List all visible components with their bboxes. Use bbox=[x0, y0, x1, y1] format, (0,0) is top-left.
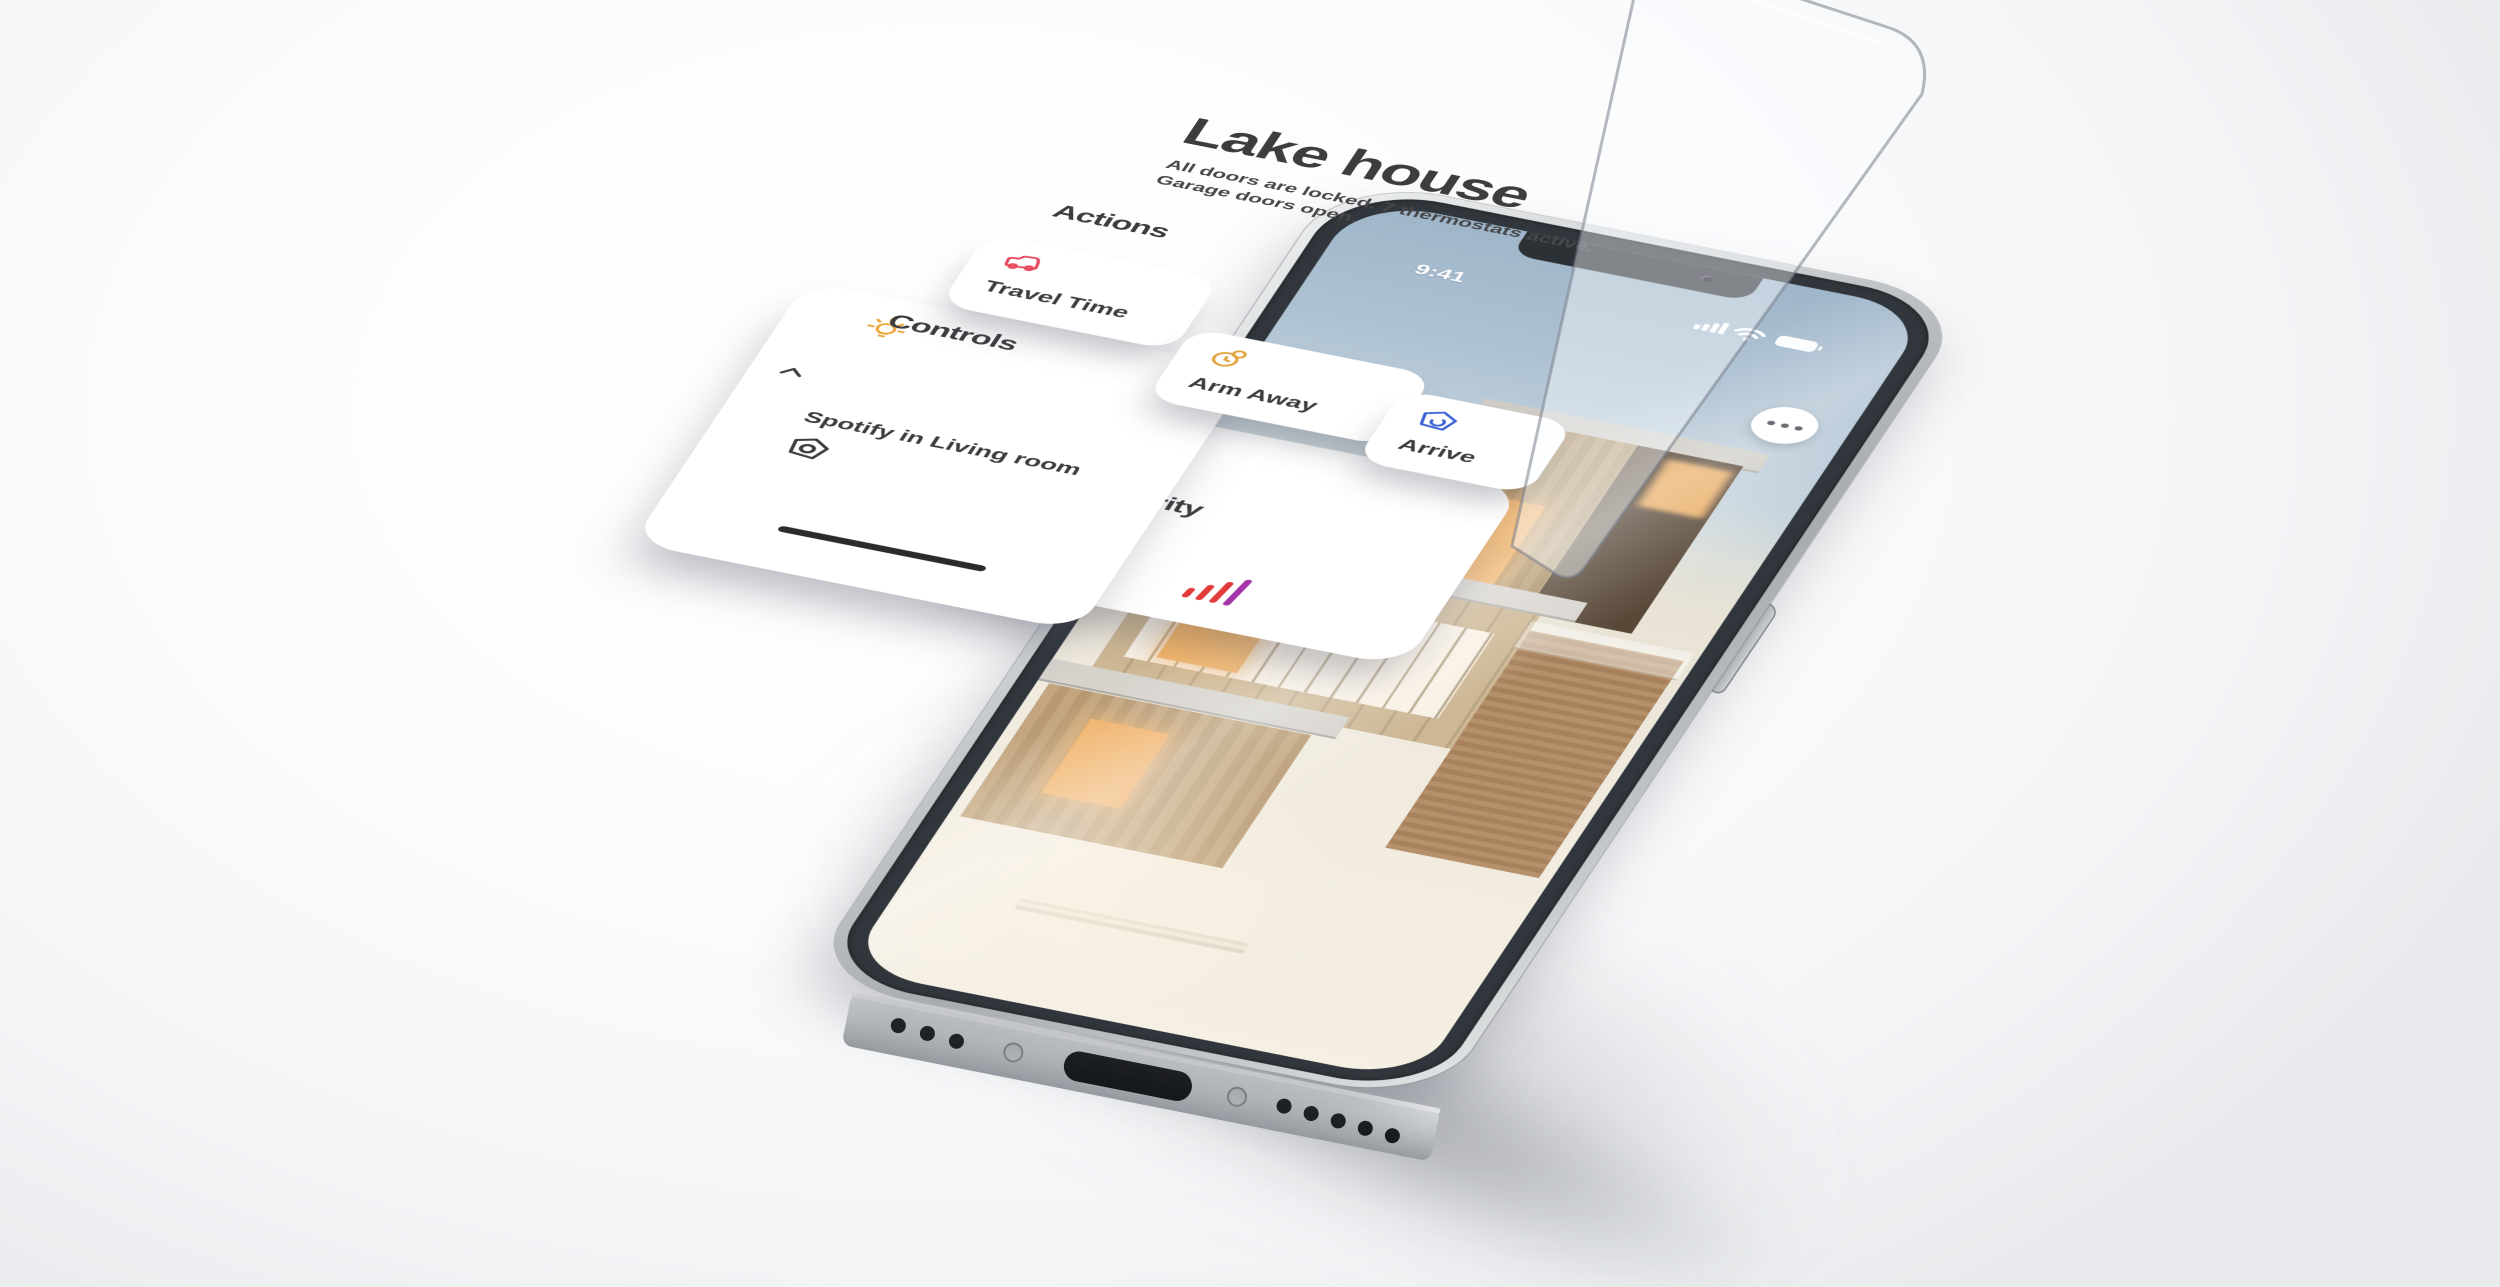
glass-pane bbox=[0, 0, 2500, 1287]
render-canvas: 9:41 bbox=[0, 0, 2500, 1287]
